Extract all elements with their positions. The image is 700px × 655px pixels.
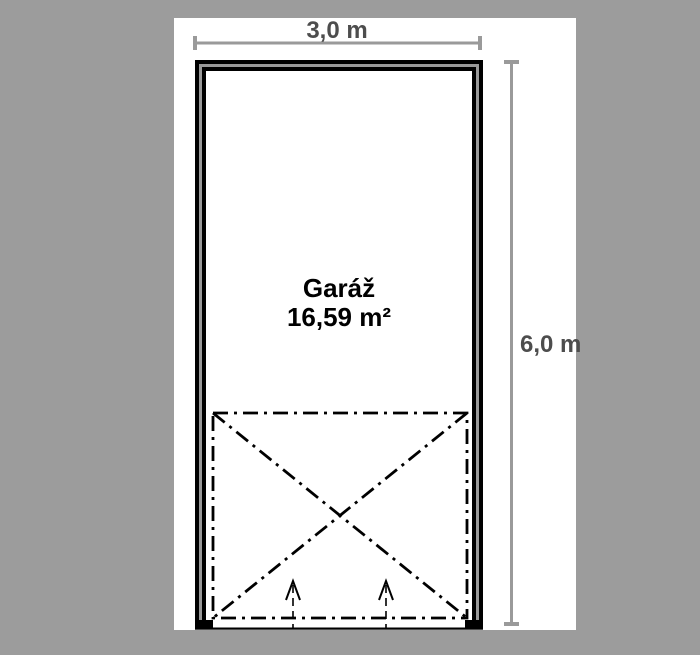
- room-name-label: Garáž: [303, 273, 375, 303]
- room-area-label: 16,59 m²: [287, 302, 391, 332]
- width-dimension-label: 3,0 m: [306, 17, 367, 44]
- threshold-line: [195, 628, 483, 630]
- floor-plan-canvas: 3,0 m 6,0 m Garáž 16,59 m²: [0, 0, 700, 650]
- height-dimension-label: 6,0 m: [520, 331, 581, 358]
- floor-plan-page: 3,0 m 6,0 m Garáž 16,59 m²: [0, 0, 700, 650]
